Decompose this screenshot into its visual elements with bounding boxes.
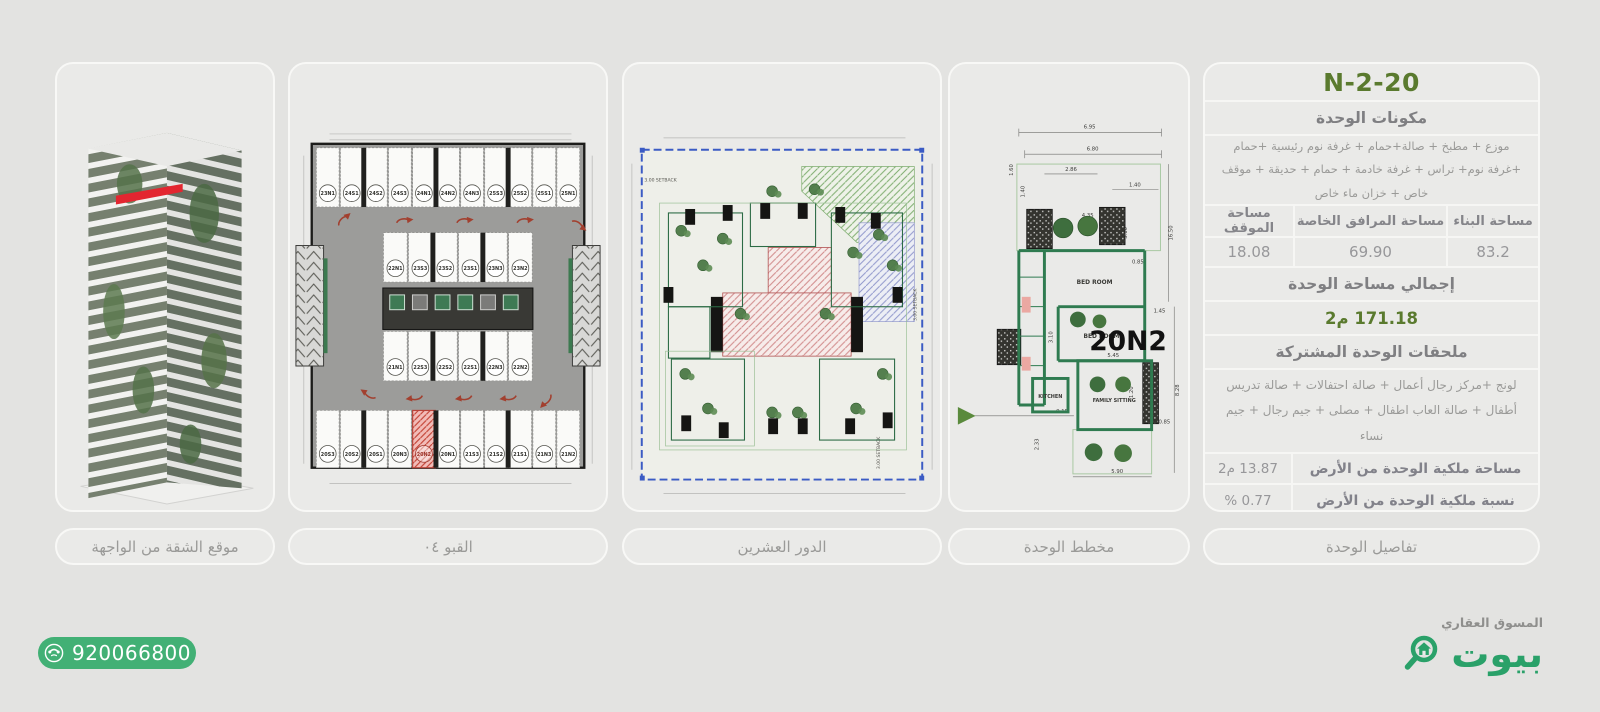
parking-stall-label: 22N2 <box>513 365 527 371</box>
areas-header-parking: مساحة الموقف <box>1205 206 1295 236</box>
marketer-label: المسوق العقاري <box>1383 615 1543 630</box>
bedroom1-label: BED ROOM <box>1077 280 1113 286</box>
parking-stall-label: 22S1 <box>464 365 478 371</box>
shared-amenities-title: ملحقات الوحدة المشتركة <box>1205 336 1538 370</box>
caption-tower-text: موقع الشقة من الواجهة <box>91 538 238 556</box>
parking-stall-label: 23N2 <box>513 266 527 272</box>
core-hatch-upper <box>768 248 831 293</box>
svg-text:3.00 SETBACK: 3.00 SETBACK <box>876 436 882 469</box>
core-column-left <box>711 297 723 352</box>
column <box>1099 207 1125 244</box>
svg-text:2.86: 2.86 <box>1065 167 1077 173</box>
land-ownership-area-label: مساحة ملكية الوحدة من الأرض <box>1291 454 1538 483</box>
land-ownership-ratio-value: 0.77 % <box>1205 485 1291 512</box>
land-ownership-area-row: مساحة ملكية الوحدة من الأرض 13.87 م2 <box>1205 454 1538 485</box>
svg-text:0.85: 0.85 <box>1132 259 1144 265</box>
parking-stall-label: 24S2 <box>369 191 383 197</box>
total-area-value: 171.18 م2 <box>1205 302 1538 336</box>
parking-stall-label: 24N1 <box>417 191 432 197</box>
svg-text:0.85: 0.85 <box>1158 420 1170 426</box>
parking-stall-label: 24N2 <box>441 191 455 197</box>
parking-stall-label: 23N3 <box>488 266 503 272</box>
svg-text:6.95: 6.95 <box>1084 125 1096 131</box>
svg-text:2.33: 2.33 <box>1035 438 1041 450</box>
parking-stall-label: 21N2 <box>561 452 575 458</box>
parking-stall-label: 20S1 <box>369 452 383 458</box>
parking-stall-label: 21S3 <box>465 452 479 458</box>
areas-header-building: مساحة البناء <box>1448 206 1538 236</box>
terrace-outline-bottom <box>1073 430 1152 474</box>
brand-logo: بيوت <box>1383 634 1543 674</box>
parking-stall-label: 23S2 <box>438 266 452 272</box>
phone-number: 920066800 <box>72 641 191 665</box>
parking-stall-label: 20N1 <box>441 452 456 458</box>
dimension-lines <box>964 129 1174 477</box>
unit-plan-drawing: 6.95 6.80 2.86 1.40 1.60 1.40 4.35 3.10 … <box>950 64 1188 510</box>
parking-stall-label: 22S2 <box>438 365 452 371</box>
partition-lines <box>1019 277 1045 366</box>
phone-contact[interactable]: 920066800 <box>38 637 196 669</box>
svg-text:1.40: 1.40 <box>1021 185 1027 197</box>
family-sitting-label: FAMILY SITTING <box>1093 398 1136 404</box>
entrance-arrow <box>958 407 976 425</box>
caption-floor: الدور العشرين <box>622 528 942 565</box>
phone-icon <box>43 642 65 664</box>
parking-stall-label: 21S1 <box>513 452 527 458</box>
brochure-canvas: 23N124S124S224S324N124N224N325S325S225S1… <box>0 0 1600 712</box>
bath-fixtures <box>1022 297 1031 371</box>
parking-stall-label: 21S2 <box>489 452 503 458</box>
areas-value-private-facilities: 69.90 <box>1295 238 1448 266</box>
svg-text:16.50: 16.50 <box>1168 225 1174 241</box>
parking-stall-label: 20S3 <box>321 452 335 458</box>
components-text: موزع + مطبخ + صالة+حمام + غرفة نوم رئيسي… <box>1205 136 1538 206</box>
total-area-title: إجمالي مساحة الوحدة <box>1205 268 1538 302</box>
svg-text:6.80: 6.80 <box>1087 146 1099 152</box>
svg-text:1.60: 1.60 <box>1009 163 1015 175</box>
shared-amenities-text: لونج +مركز رجال أعمال + صالة احتفالات + … <box>1205 370 1538 454</box>
parking-stall-label: 24N3 <box>465 191 480 197</box>
unit-code: 20-N-2 <box>1205 64 1538 102</box>
stair-treads-right <box>572 246 600 366</box>
column <box>1027 209 1053 248</box>
parking-stall-label: 23S1 <box>464 266 478 272</box>
svg-text:3.00 SETBACK: 3.00 SETBACK <box>644 177 677 183</box>
basement-plan-drawing: 23N124S124S224S324N124N224N325S325S225S1… <box>290 64 606 510</box>
land-ownership-ratio-row: نسبة ملكية الوحدة من الأرض 0.77 % <box>1205 485 1538 512</box>
tower-illustration <box>57 64 273 510</box>
panel-unit-plan: 6.95 6.80 2.86 1.40 1.60 1.40 4.35 3.10 … <box>948 62 1190 512</box>
areas-value-parking: 18.08 <box>1205 238 1295 266</box>
stair-wall-right <box>568 258 572 353</box>
svg-text:3.00 SETBACK: 3.00 SETBACK <box>912 288 918 321</box>
land-ownership-ratio-label: نسبة ملكية الوحدة من الأرض <box>1291 485 1538 512</box>
panel-basement-plan: 23N124S124S224S324N124N224N325S325S225S1… <box>288 62 608 512</box>
stair-treads-left <box>296 246 324 366</box>
svg-text:1.45: 1.45 <box>1154 309 1166 315</box>
parking-stall-label: 25S3 <box>489 191 503 197</box>
parking-stall-label: 25N1 <box>561 191 576 197</box>
parking-stall-label: 20N2 <box>417 452 431 458</box>
land-ownership-area-value: 13.87 م2 <box>1205 454 1291 483</box>
parking-stall-label: 20N3 <box>393 452 408 458</box>
parking-stall-label: 21N1 <box>388 365 403 371</box>
parking-stall-label: 22N1 <box>388 266 403 272</box>
caption-basement-text: القبو ٠٤ <box>423 538 473 556</box>
parking-stall-label: 23S3 <box>413 266 427 272</box>
panel-unit-details: 20-N-2 مكونات الوحدة موزع + مطبخ + صالة+… <box>1203 62 1540 512</box>
kitchen-label: KITCHEN <box>1038 394 1062 400</box>
stair-wall-left <box>324 258 328 353</box>
unit-number-label: 20N2 <box>1089 326 1167 357</box>
parking-stall-label: 22S3 <box>413 365 427 371</box>
parking-stall-label: 22N3 <box>488 365 503 371</box>
caption-unit-details-text: تفاصيل الوحدة <box>1326 538 1417 556</box>
svg-text:8.28: 8.28 <box>1175 384 1181 396</box>
caption-unit-details: تفاصيل الوحدة <box>1203 528 1540 565</box>
parking-stall-label: 25S2 <box>513 191 527 197</box>
panel-floor-plan: 3.00 SETBACK 3.00 SETBACK 3.00 SETBACK <box>622 62 942 512</box>
svg-text:3.10: 3.10 <box>1048 331 1054 343</box>
brand-name: بيوت <box>1451 635 1543 673</box>
caption-floor-text: الدور العشرين <box>737 538 826 556</box>
svg-text:1.40: 1.40 <box>1129 183 1141 189</box>
parking-stall-label: 24S3 <box>393 191 407 197</box>
caption-unit-plan: مخطط الوحدة <box>948 528 1190 565</box>
areas-table-header-row: مساحة البناء مساحة المرافق الخاصة مساحة … <box>1205 206 1538 238</box>
caption-tower: موقع الشقة من الواجهة <box>55 528 275 565</box>
core-column-right <box>851 297 863 352</box>
parking-stall-label: 23N1 <box>321 191 336 197</box>
parking-stall-label: 21N3 <box>537 452 552 458</box>
parking-stall-label: 25S1 <box>537 191 551 197</box>
parking-stall-label: 20S2 <box>345 452 359 458</box>
areas-table-value-row: 83.2 69.90 18.08 <box>1205 238 1538 266</box>
caption-basement: القبو ٠٤ <box>288 528 608 565</box>
components-title: مكونات الوحدة <box>1205 102 1538 136</box>
floor-plan-drawing: 3.00 SETBACK 3.00 SETBACK 3.00 SETBACK <box>624 64 940 510</box>
caption-unit-plan-text: مخطط الوحدة <box>1024 538 1115 556</box>
brand-block[interactable]: المسوق العقاري بيوت <box>1383 615 1543 674</box>
areas-table: مساحة البناء مساحة المرافق الخاصة مساحة … <box>1205 206 1538 268</box>
panel-tower-facade <box>55 62 275 512</box>
areas-value-building: 83.2 <box>1448 238 1538 266</box>
magnifier-house-icon <box>1403 634 1443 674</box>
parking-stall-label: 24S1 <box>345 191 359 197</box>
areas-header-private-facilities: مساحة المرافق الخاصة <box>1295 206 1448 236</box>
column <box>997 329 1021 364</box>
